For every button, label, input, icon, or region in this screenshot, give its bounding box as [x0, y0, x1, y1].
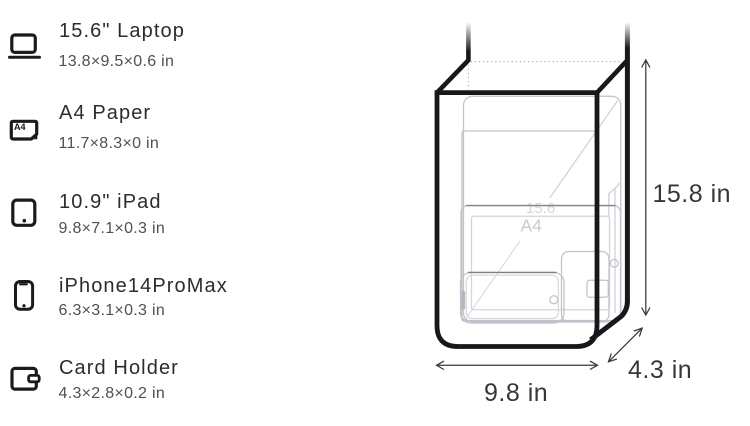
svg-text:15.6: 15.6 [526, 200, 555, 217]
svg-text:A4: A4 [521, 216, 543, 236]
